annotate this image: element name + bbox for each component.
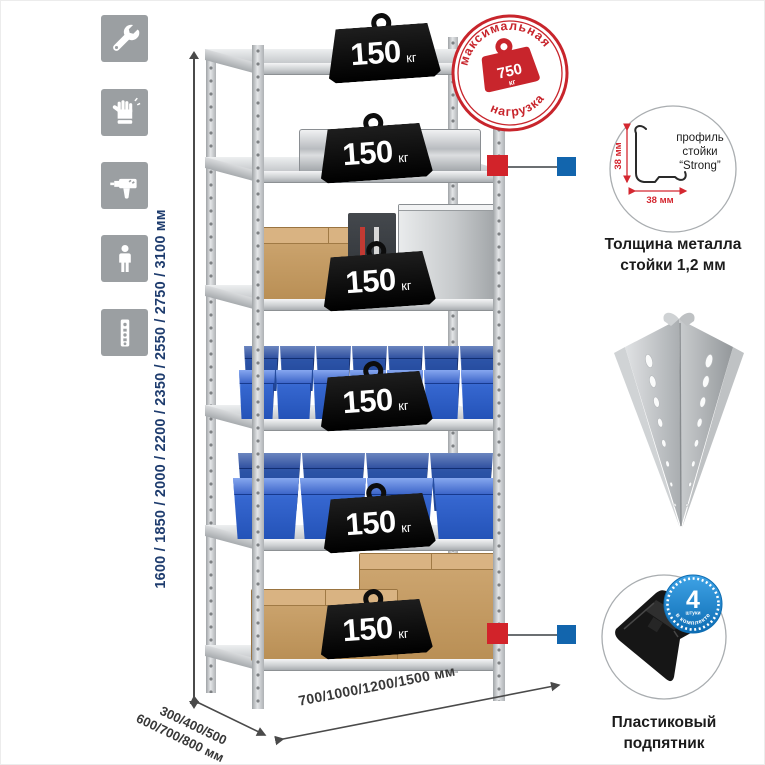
gloves-icon (101, 89, 148, 136)
shelf-load-badge: 150кг (317, 357, 434, 435)
load-value: 150 (344, 262, 397, 301)
shelf-load-badge: 150кг (325, 9, 442, 87)
shelf-load-badge: 150кг (317, 585, 434, 663)
profile-label: профиль стойки “Strong” (676, 132, 724, 172)
callout-marker-red (487, 155, 508, 176)
height-dimension-label: 1600 / 1850 / 2000 / 2200 / 2350 / 2550 … (153, 99, 175, 699)
person-icon (101, 235, 148, 282)
post-profile-detail: 38 мм 38 мм профиль стойки “Strong” (607, 103, 739, 235)
load-value: 150 (349, 34, 402, 73)
max-load-stamp: максимальная нагрузка 750 кг (438, 1, 582, 145)
stacking-bin (434, 478, 500, 539)
load-unit: кг (401, 520, 412, 536)
profile-vertical-dim: 38 мм (613, 142, 624, 169)
stacking-bin (461, 370, 497, 419)
stacking-bin (276, 370, 312, 419)
load-unit: кг (398, 398, 409, 414)
shelving-product-infographic: 1600 / 1850 / 2000 / 2200 / 2350 / 2550 … (0, 0, 765, 765)
callout-marker-blue (557, 157, 576, 176)
load-unit: кг (398, 626, 409, 642)
quantity-badge: 4 штуки в комплекте (662, 573, 724, 635)
load-unit: кг (398, 150, 409, 166)
foot-caption: Пластиковый подпятник (591, 713, 737, 755)
svg-text:“Strong”: “Strong” (679, 160, 721, 172)
load-value: 150 (341, 610, 394, 649)
arrow-up-icon (189, 51, 199, 59)
profile-caption: Толщина металла стойки 1,2 мм (597, 235, 749, 277)
rack-post-back-left (206, 49, 216, 693)
load-unit: кг (401, 278, 412, 294)
svg-text:стойки: стойки (682, 146, 717, 158)
corner-post-image (601, 297, 757, 533)
callout-line (506, 166, 564, 168)
load-value: 150 (341, 134, 394, 173)
shelf-load-badge: 150кг (320, 479, 437, 557)
quantity-small-text: штуки (685, 611, 700, 617)
shelf-load-badge: 150кг (317, 109, 434, 187)
perforated-post-icon (101, 309, 148, 356)
svg-text:профиль: профиль (676, 132, 724, 144)
callout-marker-blue (557, 625, 576, 644)
rack-post-front-left (252, 45, 264, 709)
drill-icon (101, 162, 148, 209)
height-dimension-line (193, 58, 195, 702)
stacking-bin (233, 478, 299, 539)
shelf-load-badge: 150кг (320, 237, 437, 315)
profile-horizontal-dim: 38 мм (646, 195, 673, 206)
load-value: 150 (341, 382, 394, 421)
load-value: 150 (344, 504, 397, 543)
callout-line (506, 634, 564, 636)
load-unit: кг (406, 50, 417, 66)
wrench-icon (101, 15, 148, 62)
callout-marker-red (487, 623, 508, 644)
